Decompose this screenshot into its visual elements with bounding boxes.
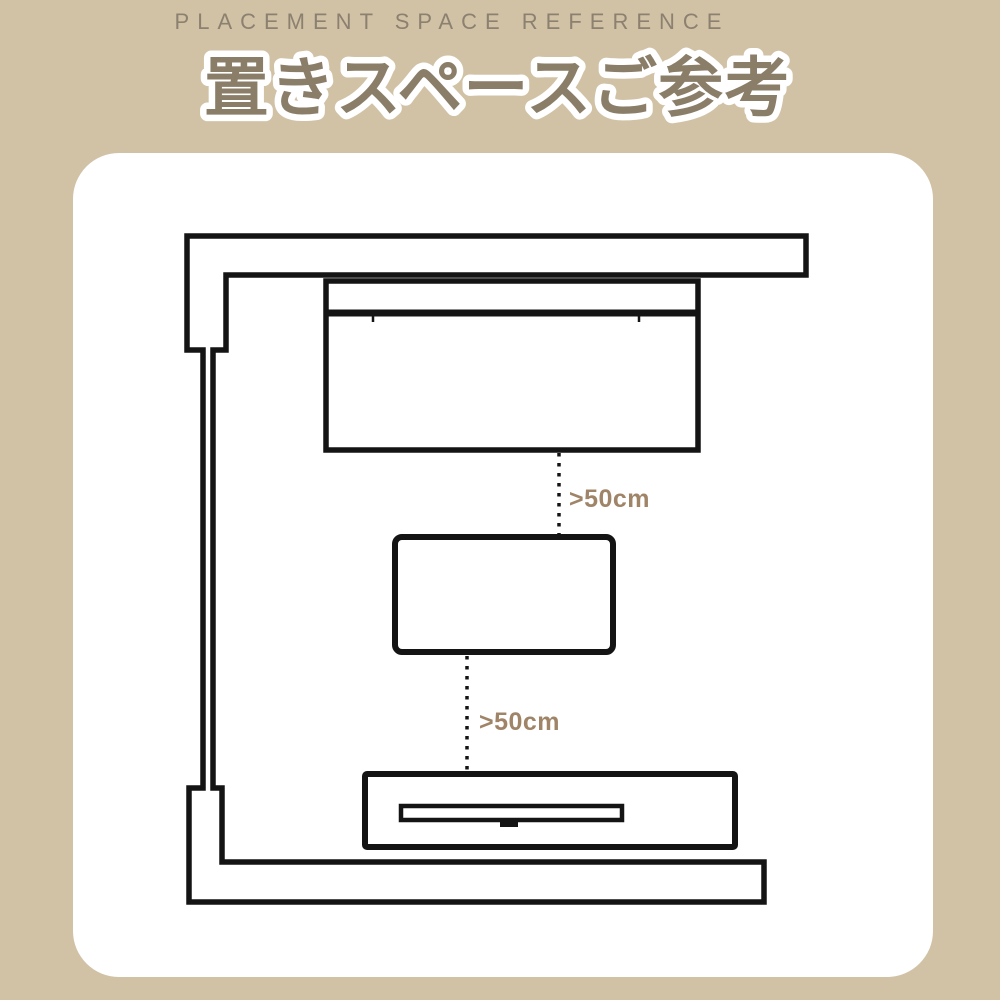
tv-stand-icon [365, 774, 735, 847]
diagram-card: >50cm >50cm [73, 153, 933, 977]
gap-distance-label-bottom: >50cm [479, 708, 560, 737]
page-title: 置きスペースご参考 [0, 38, 1000, 142]
tv-mount-notch [500, 818, 518, 827]
header-eyebrow: PLACEMENT SPACE REFERENCE [0, 9, 952, 35]
room-walls-icon [187, 236, 806, 902]
table-icon [395, 537, 613, 652]
sofa-body [326, 281, 698, 450]
gap-distance-label-top: >50cm [569, 485, 650, 514]
page-title-text: 置きスペースご参考 [204, 51, 790, 124]
sofa-icon [326, 281, 698, 450]
tv-icon [401, 806, 622, 820]
tv-stand-body [365, 774, 735, 847]
floorplan-diagram [73, 153, 933, 977]
